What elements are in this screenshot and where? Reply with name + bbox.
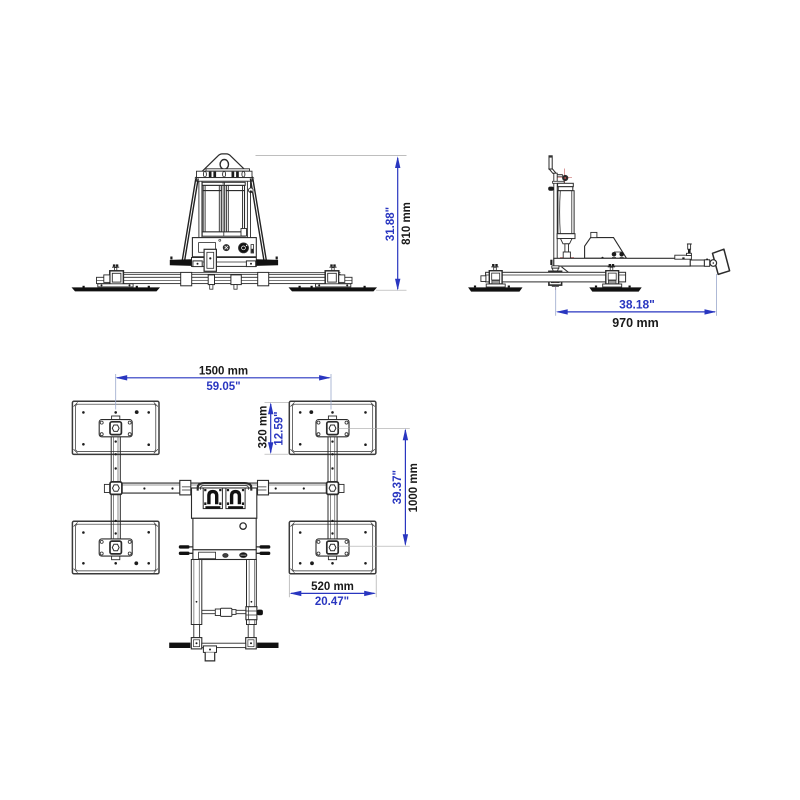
svg-text:20.47": 20.47" <box>315 596 349 608</box>
svg-text:1500 mm: 1500 mm <box>199 365 248 377</box>
svg-text:320 mm: 320 mm <box>258 406 270 449</box>
svg-text:39.37": 39.37" <box>392 470 404 504</box>
svg-text:970 mm: 970 mm <box>612 316 659 330</box>
svg-text:520 mm: 520 mm <box>311 581 354 593</box>
svg-text:59.05": 59.05" <box>206 381 240 393</box>
svg-text:810 mm: 810 mm <box>401 202 413 245</box>
svg-text:38.18": 38.18" <box>619 297 655 311</box>
svg-text:1000 mm: 1000 mm <box>408 463 420 512</box>
svg-text:12.59": 12.59" <box>273 411 285 445</box>
svg-text:31.88": 31.88" <box>385 207 397 241</box>
